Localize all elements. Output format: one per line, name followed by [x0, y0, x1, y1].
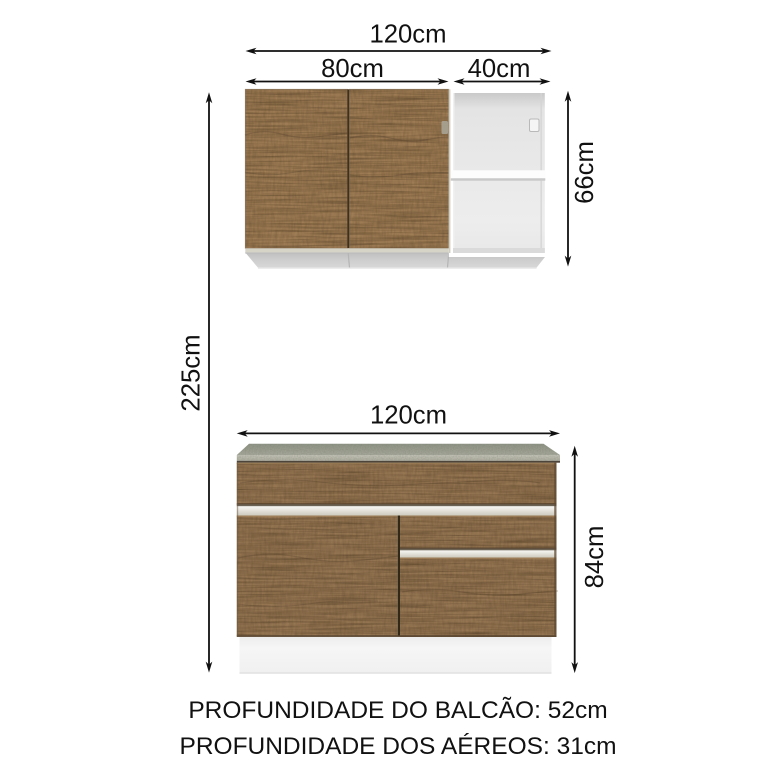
svg-text:120cm: 120cm [370, 401, 447, 429]
svg-text:84cm: 84cm [581, 526, 609, 589]
svg-text:80cm: 80cm [321, 55, 384, 83]
svg-text:225cm: 225cm [178, 334, 206, 411]
svg-text:PROFUNDIDADE DOS AÉREOS: 31cm: PROFUNDIDADE DOS AÉREOS: 31cm [179, 733, 616, 760]
svg-text:120cm: 120cm [369, 21, 446, 49]
svg-text:PROFUNDIDADE DO BALCÃO: 52cm: PROFUNDIDADE DO BALCÃO: 52cm [188, 697, 607, 724]
svg-text:66cm: 66cm [571, 141, 599, 204]
svg-text:40cm: 40cm [468, 55, 531, 83]
